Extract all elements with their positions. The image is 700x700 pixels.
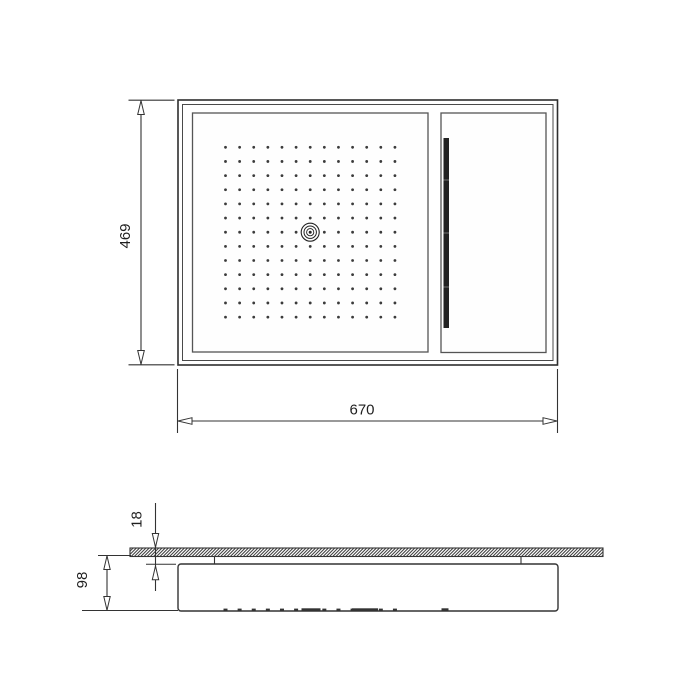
nozzle-dot bbox=[281, 203, 284, 206]
nozzle-dot bbox=[309, 302, 312, 305]
nozzle-dot bbox=[266, 316, 269, 319]
nozzle-dot bbox=[295, 273, 298, 276]
nozzle-dot bbox=[266, 146, 269, 149]
nozzle-dot bbox=[337, 160, 340, 163]
nozzle-dot bbox=[323, 273, 326, 276]
nozzle-dot bbox=[252, 302, 255, 305]
nozzle-dot bbox=[394, 302, 397, 305]
nozzle-dot bbox=[379, 203, 382, 206]
nozzle-dot bbox=[379, 316, 382, 319]
side-view bbox=[130, 548, 603, 611]
nozzle-dot bbox=[252, 259, 255, 262]
nozzle-dot bbox=[365, 174, 368, 177]
nozzle-dot bbox=[337, 287, 340, 290]
depth-dim-arrow-up-icon bbox=[104, 556, 110, 570]
nozzle-dot bbox=[365, 146, 368, 149]
center-nozzle bbox=[301, 223, 319, 241]
nozzle-dot bbox=[238, 146, 241, 149]
nozzle-dot bbox=[351, 287, 354, 290]
nozzle-dot bbox=[337, 245, 340, 248]
nozzle-dot bbox=[394, 259, 397, 262]
nozzle-dot bbox=[351, 273, 354, 276]
nozzle-dot bbox=[379, 273, 382, 276]
nozzle-dot bbox=[323, 316, 326, 319]
nozzle-dot bbox=[281, 174, 284, 177]
width-dimension: 670 bbox=[178, 369, 558, 433]
nozzle-dot bbox=[379, 231, 382, 234]
nozzle-dot bbox=[252, 217, 255, 220]
nozzle-dot bbox=[337, 217, 340, 220]
side-nozzle-dash bbox=[336, 609, 340, 611]
nozzle-dot bbox=[252, 174, 255, 177]
nozzle-dot bbox=[295, 302, 298, 305]
height-dimension: 469 bbox=[117, 100, 175, 365]
nozzle-dot bbox=[365, 302, 368, 305]
nozzle-dot bbox=[323, 203, 326, 206]
nozzle-dot bbox=[295, 259, 298, 262]
nozzle-dot bbox=[295, 217, 298, 220]
nozzle-dot bbox=[337, 302, 340, 305]
side-nozzle-dash bbox=[252, 609, 256, 611]
nozzle-dot bbox=[252, 316, 255, 319]
nozzle-dot bbox=[238, 231, 241, 234]
nozzle-dot bbox=[379, 174, 382, 177]
nozzle-dot bbox=[281, 273, 284, 276]
nozzle-dot bbox=[351, 316, 354, 319]
nozzle-dot bbox=[266, 174, 269, 177]
center-nozzle-dot bbox=[309, 231, 312, 234]
nozzle-dot bbox=[224, 217, 227, 220]
technical-drawing: 469 670 18 98 bbox=[0, 0, 700, 700]
nozzle-dot bbox=[379, 188, 382, 191]
nozzle-dot bbox=[309, 188, 312, 191]
nozzle-dot bbox=[351, 188, 354, 191]
side-nozzle-dash bbox=[224, 609, 228, 611]
height-dim-arrow-down-icon bbox=[138, 351, 145, 365]
side-nozzle-dash bbox=[322, 609, 326, 611]
nozzle-dot bbox=[365, 273, 368, 276]
nozzle-dot bbox=[266, 217, 269, 220]
depth-dim-label: 98 bbox=[74, 572, 91, 589]
nozzle-dot bbox=[252, 273, 255, 276]
nozzle-dot bbox=[266, 259, 269, 262]
nozzle-dot bbox=[281, 188, 284, 191]
nozzle-dot bbox=[281, 231, 284, 234]
nozzle-dot bbox=[224, 302, 227, 305]
depth-dimension: 98 bbox=[74, 556, 178, 611]
nozzle-dot bbox=[238, 316, 241, 319]
nozzle-dot bbox=[295, 287, 298, 290]
nozzle-dot bbox=[351, 203, 354, 206]
side-nozzle-dash bbox=[280, 609, 284, 611]
nozzle-dot bbox=[224, 160, 227, 163]
nozzle-dot bbox=[309, 316, 312, 319]
nozzle-dot bbox=[337, 146, 340, 149]
nozzle-dot bbox=[281, 160, 284, 163]
nozzle-dot bbox=[379, 146, 382, 149]
waterfall-panel bbox=[441, 113, 546, 353]
nozzle-dot bbox=[309, 245, 312, 248]
width-dim-label: 670 bbox=[349, 402, 374, 419]
nozzle-dot bbox=[337, 259, 340, 262]
side-nozzle-dash bbox=[379, 609, 383, 611]
thickness-dimension: 18 bbox=[129, 503, 177, 591]
nozzle-dot bbox=[365, 203, 368, 206]
nozzle-dot bbox=[379, 245, 382, 248]
nozzle-dot bbox=[309, 174, 312, 177]
nozzle-dot bbox=[323, 259, 326, 262]
nozzle-dot bbox=[337, 316, 340, 319]
nozzle-dot bbox=[323, 231, 326, 234]
nozzle-dot bbox=[224, 146, 227, 149]
nozzle-dot bbox=[323, 174, 326, 177]
side-nozzle-dash bbox=[352, 608, 378, 611]
nozzle-dot bbox=[295, 245, 298, 248]
side-nozzle-dash bbox=[266, 609, 270, 611]
nozzle-dot bbox=[238, 160, 241, 163]
nozzle-dot bbox=[238, 273, 241, 276]
nozzle-dot bbox=[266, 287, 269, 290]
nozzle-dot bbox=[351, 245, 354, 248]
nozzle-dot bbox=[351, 231, 354, 234]
nozzle-dot bbox=[365, 245, 368, 248]
nozzle-dot bbox=[394, 287, 397, 290]
nozzle-dot bbox=[266, 231, 269, 234]
nozzle-dot bbox=[309, 217, 312, 220]
nozzle-dot bbox=[337, 273, 340, 276]
nozzle-dot bbox=[238, 203, 241, 206]
nozzle-dot bbox=[238, 217, 241, 220]
nozzle-dot bbox=[323, 245, 326, 248]
side-nozzle-dash bbox=[294, 609, 298, 611]
nozzle-dot bbox=[379, 160, 382, 163]
nozzle-dot bbox=[295, 146, 298, 149]
side-nozzle-dash bbox=[442, 608, 449, 611]
nozzle-dot bbox=[309, 259, 312, 262]
nozzle-dot bbox=[252, 287, 255, 290]
width-dim-arrow-left-icon bbox=[178, 418, 192, 425]
nozzle-dot bbox=[394, 174, 397, 177]
nozzle-dot bbox=[224, 188, 227, 191]
nozzle-dot bbox=[323, 146, 326, 149]
nozzle-dot bbox=[394, 217, 397, 220]
nozzle-dot bbox=[224, 203, 227, 206]
nozzle-dot bbox=[394, 203, 397, 206]
nozzle-dot bbox=[266, 188, 269, 191]
shower-body bbox=[178, 564, 558, 611]
nozzle-dot bbox=[351, 160, 354, 163]
nozzle-dot bbox=[365, 259, 368, 262]
nozzle-dot bbox=[323, 160, 326, 163]
nozzle-dot bbox=[281, 259, 284, 262]
nozzle-dot bbox=[281, 302, 284, 305]
nozzle-dot bbox=[337, 231, 340, 234]
nozzle-dot bbox=[309, 146, 312, 149]
side-nozzle-dash bbox=[393, 609, 397, 611]
nozzle-dot bbox=[365, 231, 368, 234]
nozzle-dot bbox=[365, 217, 368, 220]
nozzle-dot bbox=[266, 273, 269, 276]
side-nozzle-dash bbox=[302, 608, 321, 611]
nozzle-dot bbox=[379, 302, 382, 305]
nozzle-dot bbox=[295, 160, 298, 163]
thickness-dim-arrow-up-icon bbox=[152, 566, 158, 580]
thickness-dim-arrow-down-icon bbox=[152, 534, 158, 548]
nozzle-dot bbox=[323, 302, 326, 305]
nozzle-dot bbox=[238, 287, 241, 290]
side-nozzle-dash bbox=[238, 609, 242, 611]
waterfall-slot bbox=[444, 138, 450, 328]
nozzle-dot bbox=[365, 287, 368, 290]
nozzle-dot bbox=[351, 302, 354, 305]
nozzle-dot bbox=[295, 231, 298, 234]
nozzle-dot bbox=[252, 203, 255, 206]
nozzle-dot bbox=[379, 287, 382, 290]
nozzle-dot bbox=[295, 316, 298, 319]
top-view bbox=[178, 100, 558, 365]
nozzle-dot bbox=[266, 245, 269, 248]
nozzle-dot bbox=[365, 160, 368, 163]
nozzle-dot bbox=[252, 231, 255, 234]
nozzle-dot bbox=[365, 188, 368, 191]
nozzle-dot bbox=[394, 188, 397, 191]
nozzle-dot bbox=[394, 273, 397, 276]
nozzle-dot bbox=[394, 160, 397, 163]
nozzle-dot bbox=[337, 203, 340, 206]
nozzle-dot bbox=[309, 160, 312, 163]
nozzle-dot bbox=[394, 146, 397, 149]
nozzle-dot bbox=[295, 174, 298, 177]
nozzle-dot bbox=[224, 174, 227, 177]
nozzle-dot bbox=[266, 302, 269, 305]
nozzle-dot bbox=[281, 146, 284, 149]
nozzle-dot bbox=[309, 287, 312, 290]
thickness-dim-label: 18 bbox=[129, 511, 146, 528]
nozzle-dot bbox=[224, 259, 227, 262]
nozzle-dot bbox=[252, 188, 255, 191]
nozzle-dot bbox=[337, 188, 340, 191]
nozzle-dot bbox=[337, 174, 340, 177]
nozzle-dot bbox=[394, 245, 397, 248]
nozzle-dot bbox=[379, 217, 382, 220]
nozzle-dot bbox=[323, 287, 326, 290]
nozzle-dot bbox=[309, 203, 312, 206]
nozzle-dot bbox=[238, 259, 241, 262]
nozzle-dot bbox=[224, 316, 227, 319]
nozzle-dot bbox=[351, 174, 354, 177]
nozzle-dot bbox=[365, 316, 368, 319]
nozzle-dot bbox=[295, 188, 298, 191]
depth-dim-arrow-down-icon bbox=[104, 597, 110, 611]
height-dim-arrow-up-icon bbox=[138, 101, 145, 115]
nozzle-dot bbox=[351, 217, 354, 220]
nozzle-dot bbox=[351, 259, 354, 262]
nozzle-dot bbox=[309, 273, 312, 276]
technical-drawing-page: 469 670 18 98 bbox=[0, 0, 700, 700]
nozzle-dot bbox=[224, 287, 227, 290]
nozzle-dot bbox=[252, 146, 255, 149]
nozzle-dot bbox=[281, 245, 284, 248]
nozzle-dot bbox=[379, 259, 382, 262]
nozzle-dot bbox=[266, 203, 269, 206]
height-dim-label: 469 bbox=[117, 223, 134, 248]
nozzle-dot bbox=[281, 287, 284, 290]
nozzle-dot bbox=[351, 146, 354, 149]
nozzle-dot bbox=[238, 188, 241, 191]
nozzle-dot bbox=[224, 273, 227, 276]
nozzle-dot bbox=[238, 302, 241, 305]
nozzle-dot bbox=[323, 217, 326, 220]
nozzle-dot bbox=[252, 245, 255, 248]
nozzle-dot bbox=[281, 217, 284, 220]
nozzle-dot bbox=[224, 231, 227, 234]
nozzle-dot bbox=[252, 160, 255, 163]
nozzle-dot bbox=[394, 316, 397, 319]
nozzle-dot bbox=[394, 231, 397, 234]
width-dim-arrow-right-icon bbox=[543, 418, 557, 425]
nozzle-dot bbox=[238, 245, 241, 248]
nozzle-dot bbox=[281, 316, 284, 319]
nozzle-dot bbox=[295, 203, 298, 206]
nozzle-dot bbox=[224, 245, 227, 248]
nozzle-dot bbox=[238, 174, 241, 177]
nozzle-dot bbox=[266, 160, 269, 163]
nozzle-dot bbox=[323, 188, 326, 191]
